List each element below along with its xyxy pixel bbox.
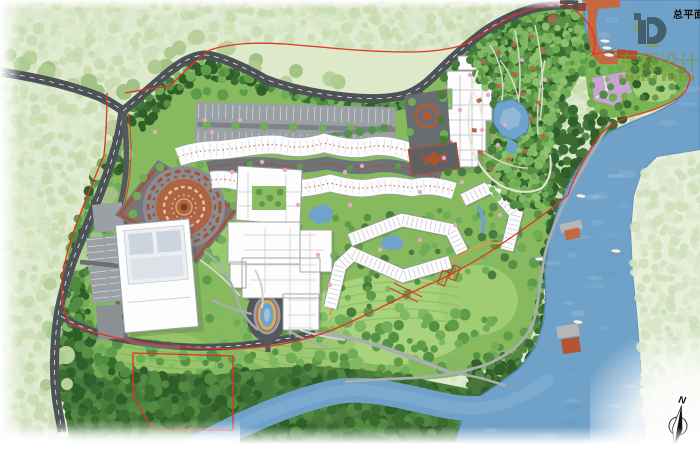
svg-text:东蒙设计: 东蒙设计 (618, 52, 699, 75)
svg-text:总平面图: 总平面图 (673, 8, 700, 21)
